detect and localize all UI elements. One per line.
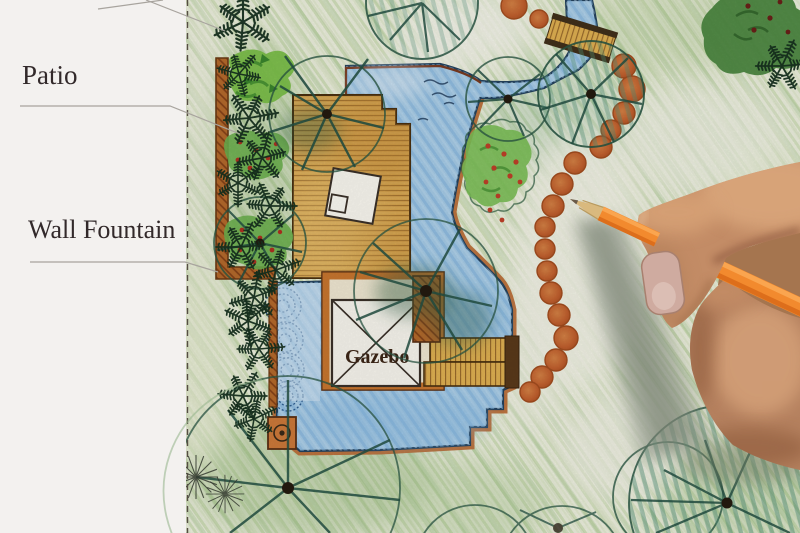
svg-text:Patio: Patio	[22, 60, 78, 90]
svg-text:Wall Fountain: Wall Fountain	[28, 215, 175, 244]
